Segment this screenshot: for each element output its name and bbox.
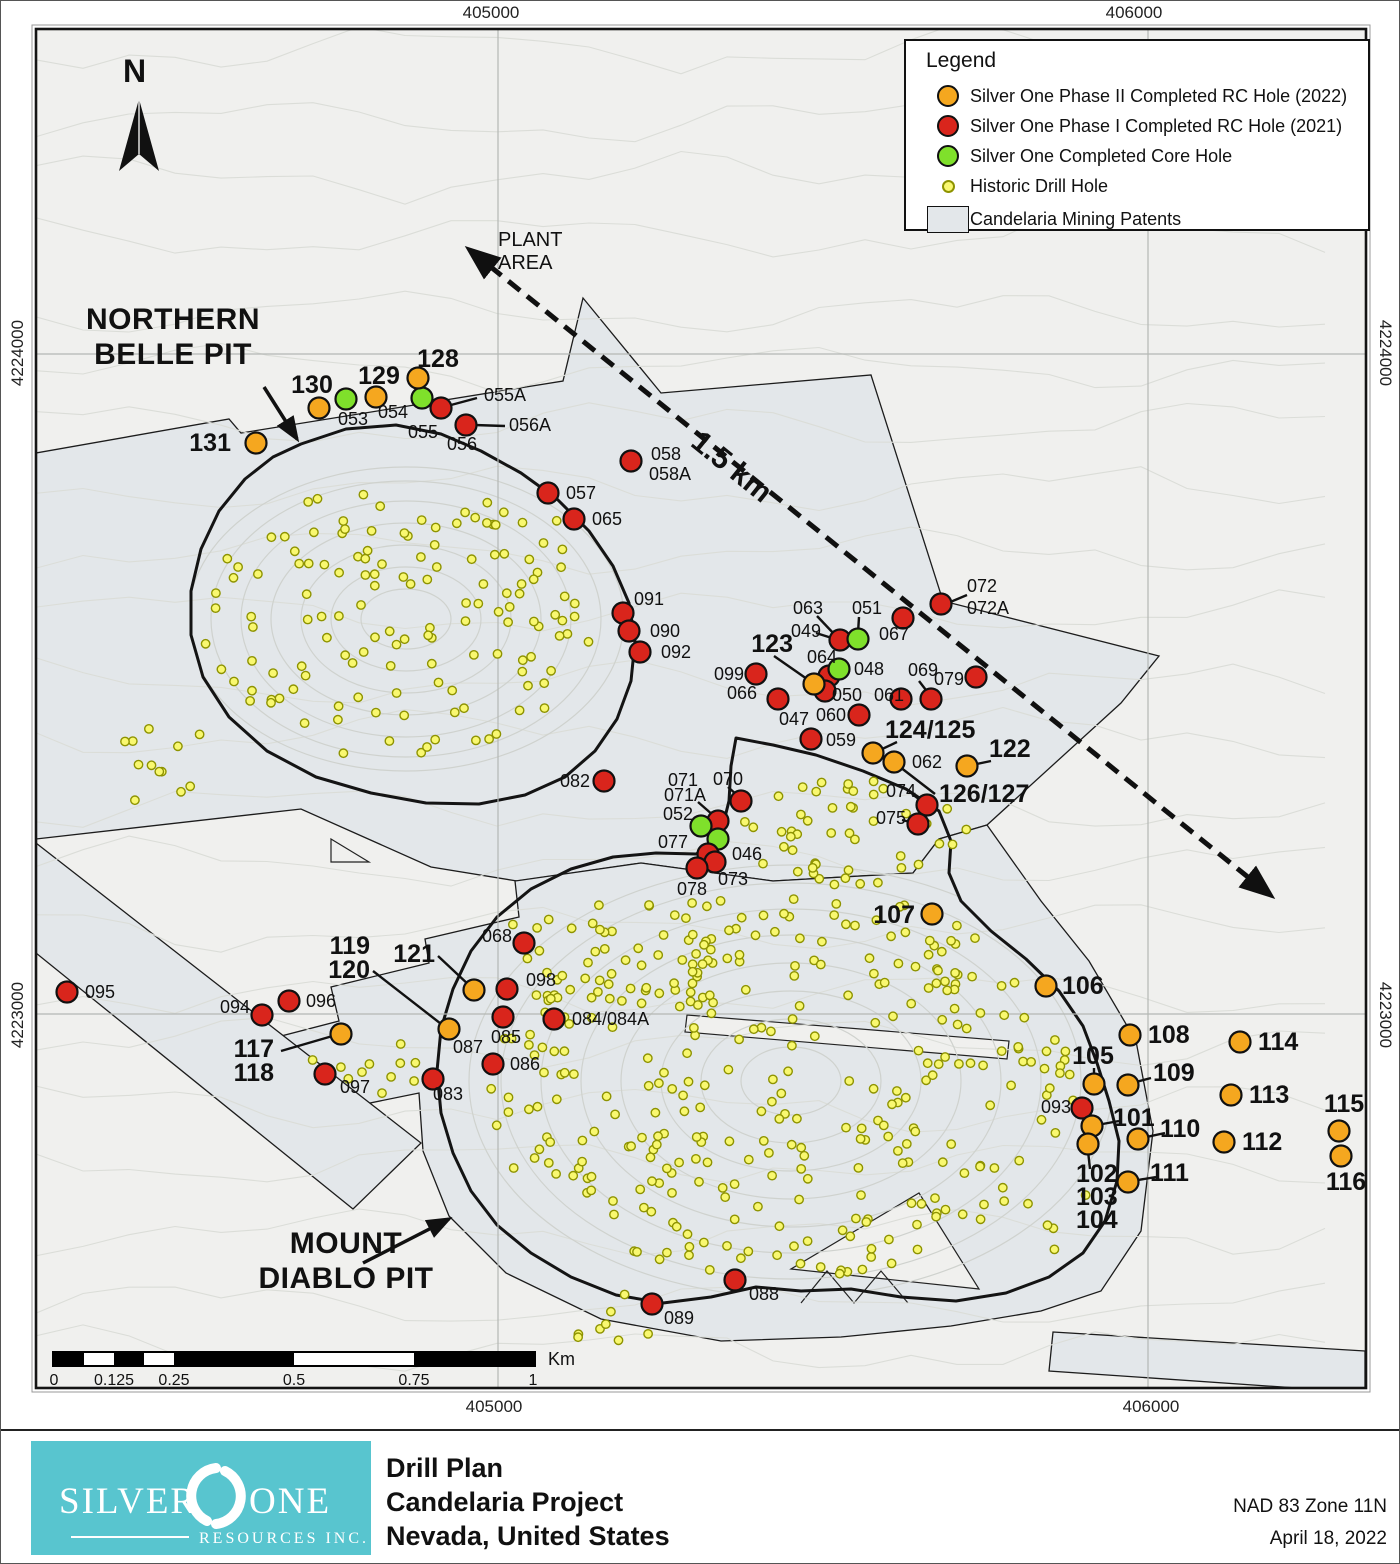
hole-label-096: 096 bbox=[306, 991, 336, 1011]
historic-drill-hole bbox=[275, 694, 283, 702]
historic-drill-hole bbox=[924, 1059, 932, 1067]
historic-drill-hole bbox=[788, 1042, 796, 1050]
historic-drill-hole bbox=[668, 1085, 676, 1093]
historic-drill-hole bbox=[155, 767, 163, 775]
historic-drill-hole bbox=[777, 828, 785, 836]
historic-drill-hole bbox=[471, 513, 479, 521]
historic-drill-hole bbox=[730, 1180, 738, 1188]
historic-drill-hole bbox=[683, 1049, 691, 1057]
historic-drill-hole bbox=[254, 570, 262, 578]
hole-label-114: 114 bbox=[1258, 1028, 1298, 1056]
historic-drill-hole bbox=[648, 1177, 656, 1185]
historic-drill-hole bbox=[523, 954, 531, 962]
historic-drill-hole bbox=[737, 1254, 745, 1262]
historic-drill-hole bbox=[679, 1091, 687, 1099]
historic-drill-hole bbox=[607, 970, 615, 978]
coordinate-label-right-north: 4224000 bbox=[1375, 320, 1395, 386]
drill-hole-060 bbox=[849, 705, 870, 726]
historic-drill-hole bbox=[248, 687, 256, 695]
historic-drill-hole bbox=[971, 934, 979, 942]
historic-drill-hole bbox=[660, 1069, 668, 1077]
hole-label-077: 077 bbox=[658, 832, 688, 852]
historic-drill-hole bbox=[894, 959, 902, 967]
historic-drill-hole bbox=[966, 1059, 974, 1067]
historic-drill-hole bbox=[1024, 1200, 1032, 1208]
historic-drill-hole bbox=[1010, 979, 1018, 987]
historic-drill-hole bbox=[558, 616, 566, 624]
historic-drill-hole bbox=[644, 1054, 652, 1062]
historic-drill-hole bbox=[788, 1141, 796, 1149]
historic-drill-hole bbox=[645, 1082, 653, 1090]
historic-drill-hole bbox=[479, 580, 487, 588]
hole-label-070: 070 bbox=[713, 769, 743, 789]
historic-drill-hole bbox=[935, 1060, 943, 1068]
historic-drill-hole bbox=[392, 640, 400, 648]
historic-drill-hole bbox=[721, 1193, 729, 1201]
historic-drill-hole bbox=[460, 704, 468, 712]
historic-drill-hole bbox=[248, 657, 256, 665]
historic-drill-hole bbox=[594, 988, 602, 996]
hole-label-059: 059 bbox=[826, 730, 856, 750]
historic-drill-hole bbox=[281, 533, 289, 541]
hole-label-063: 063 bbox=[793, 598, 823, 618]
historic-drill-hole bbox=[431, 541, 439, 549]
historic-drill-hole bbox=[267, 699, 275, 707]
historic-drill-hole bbox=[784, 1067, 792, 1075]
hole-label-092: 092 bbox=[661, 642, 691, 662]
drill-hole-094 bbox=[252, 1005, 273, 1026]
historic-drill-hole bbox=[742, 986, 750, 994]
historic-drill-hole bbox=[851, 921, 859, 929]
historic-drill-hole bbox=[953, 921, 961, 929]
historic-drill-hole bbox=[795, 1195, 803, 1203]
hole-label-112: 112 bbox=[1242, 1128, 1282, 1156]
historic-drill-hole bbox=[487, 1085, 495, 1093]
historic-drill-hole bbox=[871, 1019, 879, 1027]
scale-bar-graphic bbox=[52, 1351, 536, 1367]
historic-drill-hole bbox=[423, 743, 431, 751]
historic-drill-hole bbox=[773, 1251, 781, 1259]
historic-drill-hole bbox=[359, 490, 367, 498]
scale-tick: 0.125 bbox=[94, 1372, 134, 1390]
historic-drill-hole bbox=[546, 1138, 554, 1146]
historic-drill-hole bbox=[1007, 1081, 1015, 1089]
map-title-line2: Candelaria Project bbox=[386, 1485, 670, 1519]
historic-drill-hole bbox=[638, 1133, 646, 1141]
historic-drill-hole bbox=[812, 787, 820, 795]
drill-hole-053 bbox=[336, 389, 357, 410]
phase2-hole-icon bbox=[926, 85, 970, 107]
historic-drill-hole bbox=[195, 730, 203, 738]
historic-drill-hole bbox=[941, 1205, 949, 1213]
hole-label-085: 085 bbox=[491, 1027, 521, 1047]
historic-drill-hole bbox=[561, 592, 569, 600]
historic-drill-hole bbox=[584, 638, 592, 646]
hole-label-051: 051 bbox=[852, 598, 882, 618]
logo-word-one: ONE bbox=[249, 1481, 331, 1522]
hole-label-072A: 072A bbox=[967, 598, 1009, 618]
historic-drill-hole bbox=[689, 930, 697, 938]
historic-drill-hole bbox=[979, 1061, 987, 1069]
historic-drill-hole bbox=[396, 1059, 404, 1067]
historic-drill-hole bbox=[269, 669, 277, 677]
drill-hole-124/125 bbox=[863, 743, 884, 764]
historic-drill-hole bbox=[841, 874, 849, 882]
historic-drill-hole bbox=[914, 860, 922, 868]
historic-drill-hole bbox=[354, 693, 362, 701]
historic-drill-hole bbox=[410, 1077, 418, 1085]
hole-label-083: 083 bbox=[433, 1084, 463, 1104]
coordinate-label-bottom-west: 405000 bbox=[466, 1397, 523, 1417]
historic-drill-hole bbox=[334, 716, 342, 724]
historic-drill-hole bbox=[361, 555, 369, 563]
historic-drill-hole bbox=[913, 1220, 921, 1228]
historic-drill-hole bbox=[842, 920, 850, 928]
historic-drill-hole bbox=[867, 1253, 875, 1261]
hole-label-058: 058 bbox=[651, 444, 681, 464]
historic-drill-hole bbox=[304, 615, 312, 623]
historic-drill-hole bbox=[1051, 1129, 1059, 1137]
historic-drill-hole bbox=[601, 945, 609, 953]
historic-drill-hole bbox=[845, 1077, 853, 1085]
historic-drill-hole bbox=[943, 986, 951, 994]
historic-drill-hole bbox=[392, 689, 400, 697]
historic-drill-hole bbox=[587, 1186, 595, 1194]
historic-drill-hole bbox=[483, 499, 491, 507]
drill-hole-079 bbox=[966, 667, 987, 688]
drill-hole-051 bbox=[848, 629, 869, 650]
historic-drill-hole bbox=[386, 627, 394, 635]
hole-label-055: 055 bbox=[408, 422, 438, 442]
historic-drill-hole bbox=[1040, 1064, 1048, 1072]
historic-drill-hole bbox=[1046, 1084, 1054, 1092]
drill-hole-058 bbox=[621, 451, 642, 472]
historic-drill-hole bbox=[804, 1175, 812, 1183]
historic-drill-hole bbox=[1066, 1070, 1074, 1078]
historic-drill-hole bbox=[485, 735, 493, 743]
drill-hole-131 bbox=[246, 433, 267, 454]
legend-item-patents: Candelaria Mining Patents bbox=[926, 201, 1368, 237]
historic-drill-hole bbox=[653, 1140, 661, 1148]
hole-label-113: 113 bbox=[1249, 1081, 1289, 1109]
historic-drill-hole bbox=[335, 612, 343, 620]
historic-drill-hole bbox=[1014, 1043, 1022, 1051]
historic-drill-hole bbox=[462, 599, 470, 607]
hole-label-130: 130 bbox=[291, 371, 333, 399]
map-title-block: Drill Plan Candelaria Project Nevada, Un… bbox=[386, 1451, 670, 1553]
silver-one-logo: SILVER ONE RESOURCES INC. bbox=[31, 1441, 371, 1560]
historic-drill-hole bbox=[663, 1248, 671, 1256]
historic-drill-hole bbox=[428, 660, 436, 668]
hole-label-093: 093 bbox=[1041, 1097, 1071, 1117]
hole-label-105: 105 bbox=[1072, 1042, 1114, 1070]
historic-drill-hole bbox=[472, 736, 480, 744]
historic-drill-hole bbox=[1043, 1221, 1051, 1229]
drill-hole-090 bbox=[619, 621, 640, 642]
historic-drill-hole bbox=[960, 1169, 968, 1177]
historic-drill-hole bbox=[568, 924, 576, 932]
historic-drill-hole bbox=[655, 1079, 663, 1087]
historic-drill-hole bbox=[510, 1164, 518, 1172]
historic-drill-hole bbox=[926, 936, 934, 944]
drill-hole-121 bbox=[464, 980, 485, 1001]
hole-label-067: 067 bbox=[879, 624, 909, 644]
historic-drill-hole bbox=[518, 518, 526, 526]
mining-patent-swatch bbox=[926, 206, 970, 233]
historic-drill-hole bbox=[844, 780, 852, 788]
coordinate-label-top-east: 406000 bbox=[1106, 3, 1163, 23]
historic-drill-hole bbox=[645, 901, 653, 909]
historic-drill-hole bbox=[595, 901, 603, 909]
hole-label-091: 091 bbox=[634, 589, 664, 609]
historic-drill-hole bbox=[796, 1260, 804, 1268]
historic-drill-hole bbox=[811, 1032, 819, 1040]
historic-drill-hole bbox=[300, 719, 308, 727]
historic-drill-hole bbox=[1015, 1156, 1023, 1164]
historic-drill-hole bbox=[217, 665, 225, 673]
historic-drill-hole bbox=[570, 612, 578, 620]
historic-drill-hole bbox=[893, 1087, 901, 1095]
historic-drill-hole bbox=[234, 563, 242, 571]
historic-drill-hole bbox=[683, 1230, 691, 1238]
historic-drill-hole bbox=[796, 934, 804, 942]
hole-label-048: 048 bbox=[854, 659, 884, 679]
coordinate-label-bottom-east: 406000 bbox=[1123, 1397, 1180, 1417]
historic-drill-hole bbox=[535, 947, 543, 955]
historic-drill-hole bbox=[308, 1056, 316, 1064]
historic-drill-hole bbox=[339, 517, 347, 525]
drill-hole-072 bbox=[931, 594, 952, 615]
drill-hole-108 bbox=[1120, 1025, 1141, 1046]
historic-drill-hole bbox=[769, 1075, 777, 1083]
historic-drill-hole bbox=[676, 1002, 684, 1010]
hole-label-090: 090 bbox=[650, 621, 680, 641]
coordinate-label-right-south: 4223000 bbox=[1375, 982, 1395, 1048]
historic-drill-hole bbox=[684, 1078, 692, 1086]
legend-box: Legend Silver One Phase II Completed RC … bbox=[904, 39, 1370, 231]
hole-label-110: 110 bbox=[1160, 1115, 1200, 1143]
scale-tick: 0.25 bbox=[158, 1372, 189, 1390]
historic-drill-hole bbox=[247, 612, 255, 620]
drill-hole-095 bbox=[57, 982, 78, 1003]
historic-drill-hole bbox=[869, 1085, 877, 1093]
scale-bar: Km 0 0.125 0.25 0.5 0.75 1 bbox=[52, 1351, 612, 1392]
historic-drill-hole bbox=[535, 1145, 543, 1153]
historic-drill-hole bbox=[842, 1123, 850, 1131]
historic-drill-hole bbox=[229, 574, 237, 582]
hole-label-072: 072 bbox=[967, 576, 997, 596]
historic-drill-hole bbox=[693, 1133, 701, 1141]
plant-area-label: PLANT AREA bbox=[498, 229, 588, 275]
historic-drill-hole bbox=[525, 1041, 533, 1049]
historic-drill-hole bbox=[963, 1024, 971, 1032]
historic-drill-hole bbox=[305, 559, 313, 567]
historic-drill-hole bbox=[741, 818, 749, 826]
historic-drill-hole bbox=[545, 915, 553, 923]
historic-drill-hole bbox=[899, 1159, 907, 1167]
historic-drill-hole bbox=[880, 1121, 888, 1129]
drill-hole-089 bbox=[642, 1294, 663, 1315]
historic-drill-hole bbox=[830, 911, 838, 919]
drill-hole-112 bbox=[1214, 1132, 1235, 1153]
historic-drill-hole bbox=[759, 911, 767, 919]
historic-drill-hole bbox=[976, 1215, 984, 1223]
hole-label-065: 065 bbox=[592, 509, 622, 529]
drill-hole-099 bbox=[746, 664, 767, 685]
hole-label-126/127: 126/127 bbox=[939, 780, 1029, 808]
historic-drill-hole bbox=[504, 1093, 512, 1101]
hole-label-073: 073 bbox=[718, 869, 748, 889]
historic-drill-hole bbox=[800, 1152, 808, 1160]
historic-drill-hole bbox=[655, 1255, 663, 1263]
historic-drill-hole bbox=[901, 928, 909, 936]
historic-drill-hole bbox=[950, 1004, 958, 1012]
historic-drill-hole bbox=[654, 951, 662, 959]
historic-drill-hole bbox=[903, 1140, 911, 1148]
historic-drill-hole bbox=[999, 1184, 1007, 1192]
historic-drill-hole bbox=[557, 563, 565, 571]
historic-drill-hole bbox=[134, 760, 142, 768]
drill-hole-070 bbox=[731, 791, 752, 812]
historic-drill-hole bbox=[560, 1047, 568, 1055]
historic-drill-hole bbox=[636, 1185, 644, 1193]
hole-label-104: 104 bbox=[1076, 1206, 1118, 1234]
historic-drill-hole bbox=[634, 944, 642, 952]
historic-drill-hole bbox=[418, 516, 426, 524]
historic-drill-hole bbox=[566, 986, 574, 994]
historic-drill-hole bbox=[688, 899, 696, 907]
legend-item-label: Silver One Phase I Completed RC Hole (20… bbox=[970, 116, 1342, 137]
hole-label-068: 068 bbox=[482, 926, 512, 946]
historic-drill-hole bbox=[847, 803, 855, 811]
historic-drill-hole bbox=[551, 611, 559, 619]
historic-drill-hole bbox=[627, 1142, 635, 1150]
historic-drill-hole bbox=[780, 843, 788, 851]
historic-drill-hole bbox=[685, 1251, 693, 1259]
historic-drill-hole bbox=[552, 1170, 560, 1178]
historic-drill-hole bbox=[530, 1154, 538, 1162]
historic-hole-icon bbox=[926, 180, 970, 193]
historic-drill-hole bbox=[301, 671, 309, 679]
hole-label-118: 118 bbox=[234, 1059, 274, 1087]
legend-item-label: Silver One Completed Core Hole bbox=[970, 146, 1232, 167]
historic-drill-hole bbox=[976, 1009, 984, 1017]
historic-drill-hole bbox=[553, 517, 561, 525]
hole-label-088: 088 bbox=[749, 1284, 779, 1304]
historic-drill-hole bbox=[289, 685, 297, 693]
historic-drill-hole bbox=[518, 667, 526, 675]
historic-drill-hole bbox=[432, 523, 440, 531]
historic-drill-hole bbox=[530, 617, 538, 625]
historic-drill-hole bbox=[885, 1235, 893, 1243]
hole-label-055A: 055A bbox=[484, 385, 526, 405]
drill-hole-096 bbox=[279, 991, 300, 1012]
hole-label-078: 078 bbox=[677, 879, 707, 899]
historic-drill-hole bbox=[692, 1155, 700, 1163]
historic-drill-hole bbox=[911, 962, 919, 970]
historic-drill-hole bbox=[310, 528, 318, 536]
historic-drill-hole bbox=[431, 735, 439, 743]
drill-hole-111 bbox=[1118, 1172, 1139, 1193]
historic-drill-hole bbox=[897, 864, 905, 872]
core-hole-icon bbox=[926, 145, 970, 167]
logo-subtitle: RESOURCES INC. bbox=[199, 1530, 369, 1547]
historic-drill-hole bbox=[774, 792, 782, 800]
historic-drill-hole bbox=[387, 662, 395, 670]
historic-drill-hole bbox=[423, 575, 431, 583]
historic-drill-hole bbox=[696, 1103, 704, 1111]
historic-drill-hole bbox=[870, 790, 878, 798]
historic-drill-hole bbox=[719, 1184, 727, 1192]
historic-drill-hole bbox=[448, 686, 456, 694]
historic-drill-hole bbox=[434, 678, 442, 686]
historic-drill-hole bbox=[515, 706, 523, 714]
historic-drill-hole bbox=[911, 1127, 919, 1135]
historic-drill-hole bbox=[547, 667, 555, 675]
historic-drill-hole bbox=[856, 880, 864, 888]
historic-drill-hole bbox=[852, 1214, 860, 1222]
historic-drill-hole bbox=[376, 502, 384, 510]
historic-drill-hole bbox=[838, 1226, 846, 1234]
historic-drill-hole bbox=[687, 988, 695, 996]
hole-label-107: 107 bbox=[873, 901, 915, 929]
hole-label-115: 115 bbox=[1324, 1090, 1364, 1118]
hole-label-052: 052 bbox=[663, 804, 693, 824]
historic-drill-hole bbox=[525, 555, 533, 563]
historic-drill-hole bbox=[998, 1047, 1006, 1055]
historic-drill-hole bbox=[844, 991, 852, 999]
historic-drill-hole bbox=[869, 777, 877, 785]
historic-drill-hole bbox=[230, 677, 238, 685]
hole-label-116: 116 bbox=[1326, 1168, 1366, 1196]
historic-drill-hole bbox=[735, 951, 743, 959]
hole-label-064: 064 bbox=[807, 647, 837, 667]
mount-diablo-pit-label-line1: MOUNT bbox=[226, 1227, 466, 1262]
historic-drill-hole bbox=[932, 1212, 940, 1220]
historic-drill-hole bbox=[797, 1144, 805, 1152]
hole-label-062: 062 bbox=[912, 752, 942, 772]
map-meta-block: NAD 83 Zone 11N April 18, 2022 bbox=[1233, 1491, 1387, 1555]
hole-label-101: 101 bbox=[1113, 1104, 1155, 1132]
northern-belle-pit-label-line1: NORTHERN bbox=[43, 303, 303, 338]
historic-drill-hole bbox=[706, 1266, 714, 1274]
historic-drill-hole bbox=[298, 662, 306, 670]
historic-drill-hole bbox=[563, 630, 571, 638]
historic-drill-hole bbox=[533, 924, 541, 932]
historic-drill-hole bbox=[555, 632, 563, 640]
historic-drill-hole bbox=[295, 559, 303, 567]
historic-drill-hole bbox=[212, 589, 220, 597]
historic-drill-hole bbox=[493, 1121, 501, 1129]
drill-hole-059 bbox=[801, 729, 822, 750]
historic-drill-hole bbox=[690, 1024, 698, 1032]
historic-drill-hole bbox=[540, 679, 548, 687]
historic-drill-hole bbox=[897, 852, 905, 860]
historic-drill-hole bbox=[620, 1290, 628, 1298]
historic-drill-hole bbox=[1027, 1058, 1035, 1066]
historic-drill-hole bbox=[670, 979, 678, 987]
drill-hole-106 bbox=[1036, 976, 1057, 997]
historic-drill-hole bbox=[844, 866, 852, 874]
drill-hole-116 bbox=[1331, 1146, 1352, 1167]
historic-drill-hole bbox=[483, 519, 491, 527]
historic-drill-hole bbox=[610, 1210, 618, 1218]
hole-label-111: 111 bbox=[1150, 1159, 1189, 1187]
historic-drill-hole bbox=[725, 1137, 733, 1145]
historic-drill-hole bbox=[527, 653, 535, 661]
historic-drill-hole bbox=[668, 1189, 676, 1197]
drill-hole-098 bbox=[497, 979, 518, 1000]
